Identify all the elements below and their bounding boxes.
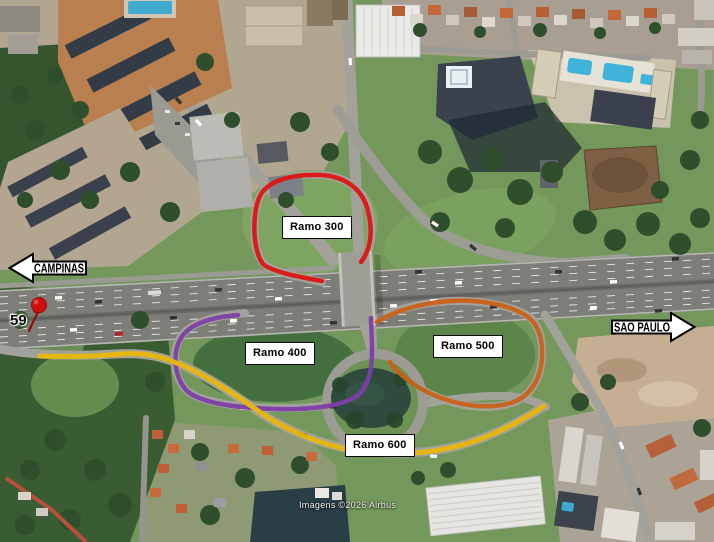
- satellite-basemap: [0, 0, 714, 542]
- ramp-300-label: Ramo 300: [282, 216, 352, 239]
- ramp-400-label: Ramo 400: [245, 342, 315, 365]
- campinas-label: CAMPINAS: [34, 262, 84, 276]
- red-pushpin-icon: [24, 297, 54, 337]
- interchange-satellite-figure: Ramo 300 Ramo 400 Ramo 500 Ramo 600 CAMP…: [0, 0, 714, 542]
- sao-paulo-label: SÃO PAULO: [614, 320, 670, 335]
- ramp-600-label: Ramo 600: [345, 434, 415, 457]
- campinas-direction-arrow: CAMPINAS: [8, 252, 88, 284]
- ramp-500-label: Ramo 500: [433, 335, 503, 358]
- sao-paulo-direction-arrow: SÃO PAULO: [610, 311, 696, 343]
- imagery-attribution: Imagens ©2026 Airbus: [299, 501, 396, 510]
